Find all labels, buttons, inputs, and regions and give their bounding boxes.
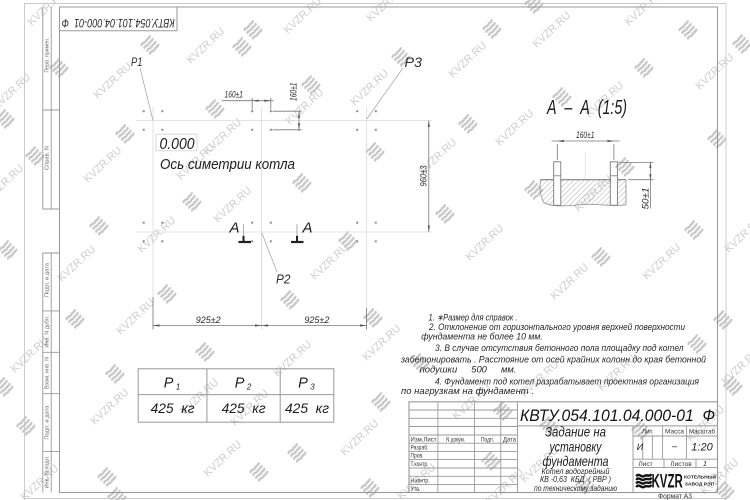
svg-text:425 кг: 425 кг (151, 401, 195, 416)
svg-text:фундамента не более 10 мм.: фундамента не более 10 мм. (421, 330, 543, 341)
svg-text:Лит.: Лит. (642, 428, 654, 435)
svg-text:ЗАВОД РЭП: ЗАВОД РЭП (685, 482, 715, 488)
svg-text:1:20: 1:20 (691, 442, 713, 454)
svg-text:Р: Р (164, 376, 174, 392)
svg-text:960±3: 960±3 (419, 165, 430, 187)
svg-text:Инв. N подл.: Инв. N подл. (44, 455, 50, 488)
svg-text:Масштаб: Масштаб (689, 427, 715, 435)
svg-text:Н.контр.: Н.контр. (411, 478, 430, 485)
svg-text:Подп.: Подп. (481, 436, 494, 443)
svg-text:Р: Р (235, 376, 245, 392)
svg-text:Взам. инв. N: Взам. инв. N (44, 357, 50, 389)
svg-text:Р2: Р2 (276, 272, 291, 287)
svg-text:KVZR: KVZR (652, 472, 684, 493)
svg-text:КВ -0,63 КБД ( РВР ): КВ -0,63 КБД ( РВР ) (540, 475, 611, 484)
svg-text:Справ. N: Справ. N (44, 146, 50, 170)
svg-text:425 кг: 425 кг (285, 401, 329, 416)
svg-text:50±1: 50±1 (640, 188, 651, 210)
svg-text:А: А (302, 220, 313, 237)
svg-text:Пров.: Пров. (411, 453, 424, 460)
svg-text:Инв. N дубл.: Инв. N дубл. (44, 315, 50, 347)
svg-text:Лист: Лист (638, 461, 652, 468)
svg-text:Перв. примен.: Перв. примен. (44, 37, 50, 72)
svg-text:Р: Р (298, 376, 308, 392)
svg-text:А – А (1:5): А – А (1:5) (546, 97, 627, 119)
svg-text:Дата: Дата (503, 436, 516, 443)
svg-text:Разраб.: Разраб. (411, 444, 429, 452)
svg-text:Подп. и дата: Подп. и дата (44, 405, 50, 440)
svg-text:Р3: Р3 (405, 55, 423, 70)
svg-text:1: 1 (176, 383, 180, 392)
svg-text:Изм.Лист: Изм.Лист (411, 436, 437, 443)
svg-text:Листов: Листов (670, 461, 692, 468)
svg-text:КВТУ.054.101.04.000-01 Ф: КВТУ.054.101.04.000-01 Ф (520, 407, 715, 425)
svg-text:КВТУ.054.101.04.000-01 Ф: КВТУ.054.101.04.000-01 Ф (62, 16, 175, 28)
svg-text:3. В случае отсутствия бетонно: 3. В случае отсутствия бетонного пола пл… (435, 342, 684, 353)
svg-text:Формат А3: Формат А3 (658, 493, 692, 500)
svg-text:160±1: 160±1 (225, 90, 244, 101)
svg-text:925±2: 925±2 (196, 315, 222, 326)
svg-text:925±2: 925±2 (304, 315, 330, 326)
svg-text:160±1: 160±1 (289, 83, 300, 102)
svg-text:А: А (229, 220, 240, 237)
svg-text:Т.контр.: Т.контр. (411, 461, 429, 468)
svg-text:Р1: Р1 (131, 55, 143, 69)
svg-text:3: 3 (310, 383, 315, 392)
svg-text:И: И (637, 442, 644, 452)
svg-text:Ось симетрии котла: Ось симетрии котла (160, 156, 295, 173)
svg-text:1: 1 (703, 461, 707, 468)
svg-text:425 кг: 425 кг (222, 401, 266, 416)
svg-text:2: 2 (246, 383, 252, 392)
svg-text:160±1: 160±1 (576, 130, 595, 141)
svg-text:по техническому заданию: по техническому заданию (534, 484, 617, 493)
svg-text:0.000: 0.000 (160, 136, 195, 153)
svg-text:Подп. и дата: Подп. и дата (44, 262, 50, 297)
svg-text:по нагрузкам на фундамент .: по нагрузкам на фундамент . (401, 385, 534, 396)
svg-text:Масса: Масса (665, 428, 684, 435)
svg-text:Утв.: Утв. (411, 486, 421, 493)
svg-text:–: – (671, 441, 678, 451)
svg-text:Задание на: Задание на (545, 424, 606, 440)
svg-text:N докум.: N докум. (446, 436, 465, 443)
svg-text:подушки 500 мм.: подушки 500 мм. (420, 364, 517, 375)
